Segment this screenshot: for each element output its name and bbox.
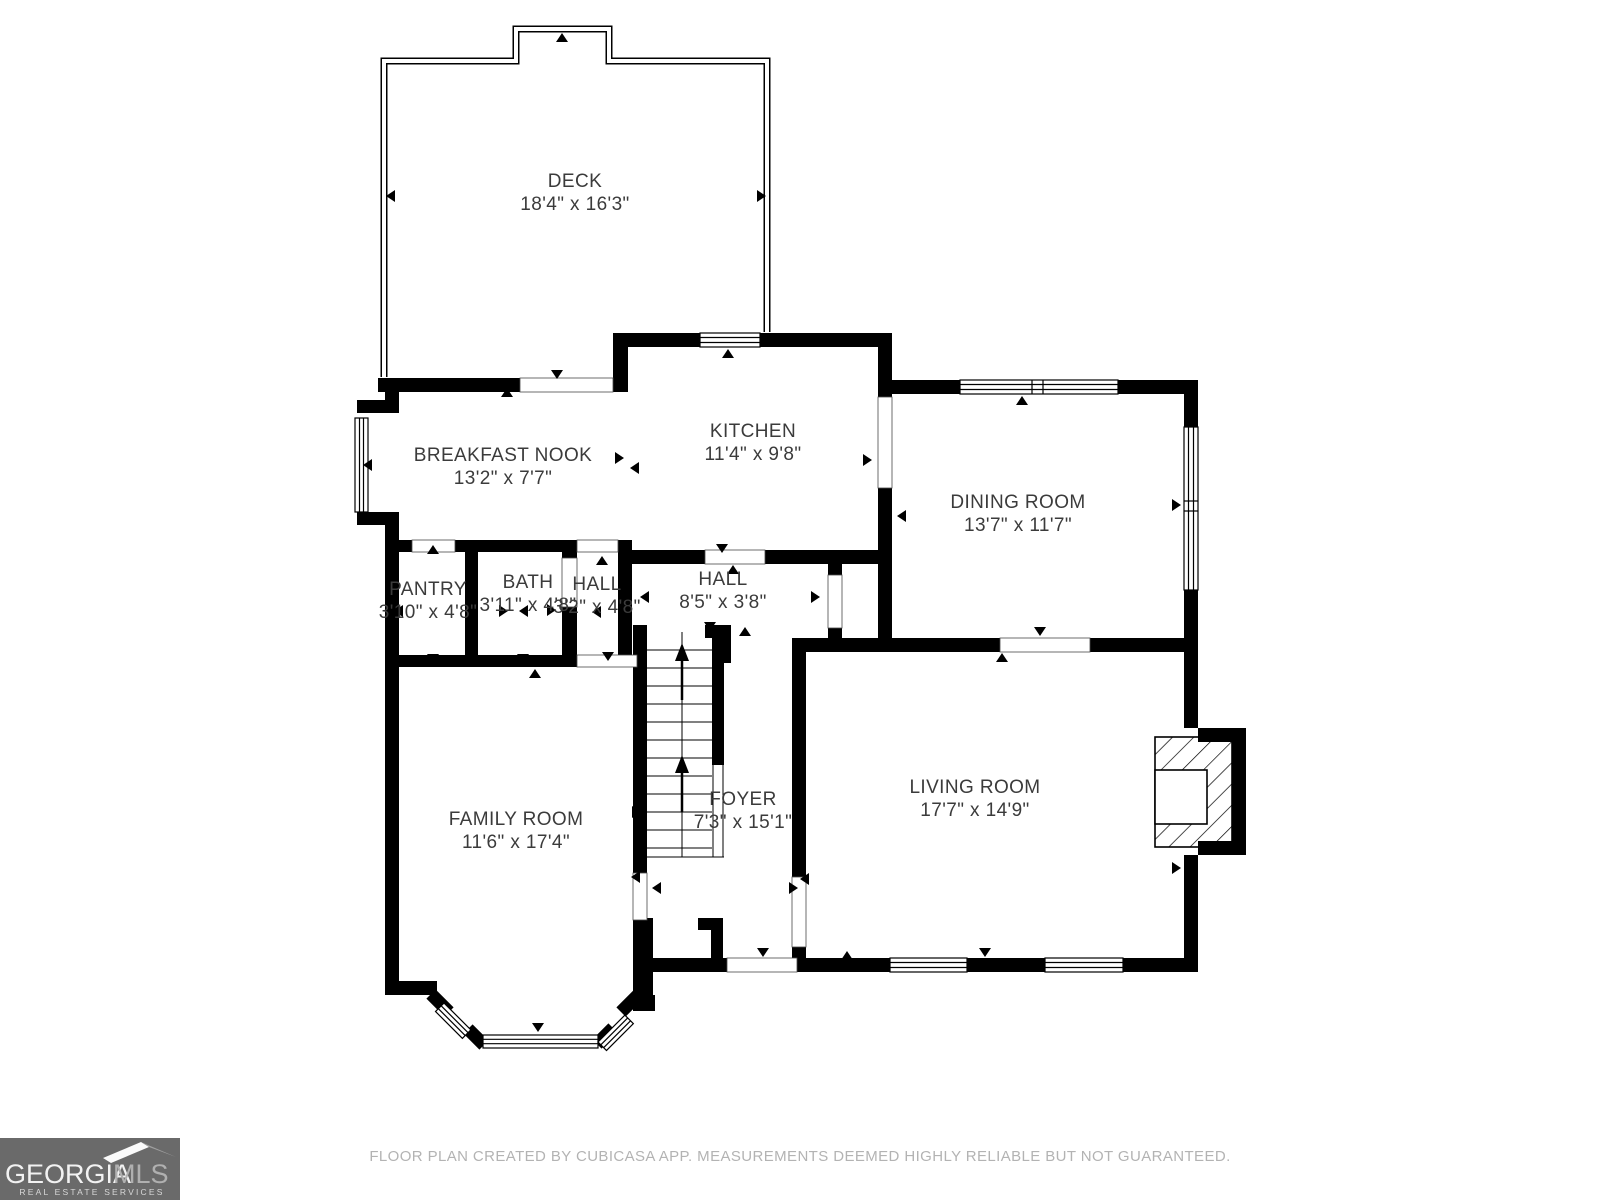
- room-name: DECK: [520, 170, 629, 193]
- dining-right-window: [1184, 427, 1198, 590]
- room-label-pantry: PANTRY 3'10" x 4'8": [379, 578, 477, 624]
- floor-plan-page: DECK 18'4" x 16'3" BREAKFAST NOOK 13'2" …: [0, 0, 1600, 1200]
- living-window-right: [1045, 958, 1123, 972]
- bay-window-bottom: [483, 1035, 598, 1048]
- room-label-hall: HALL 8'5" x 3'8": [679, 568, 766, 614]
- logo-tagline: REAL ESTATE SERVICES: [19, 1187, 164, 1197]
- room-label-kitchen: KITCHEN 11'4" x 9'8": [704, 420, 801, 466]
- fireplace-firebox: [1155, 770, 1207, 824]
- room-dims: 7'3" x 15'1": [694, 811, 792, 834]
- footer-disclaimer: FLOOR PLAN CREATED BY CUBICASA APP. MEAS…: [0, 1148, 1600, 1165]
- room-dims: 11'4" x 9'8": [704, 443, 801, 466]
- dining-top-window: [960, 380, 1118, 394]
- room-dims: 3'10" x 4'8": [379, 601, 477, 624]
- room-name: BREAKFAST NOOK: [414, 444, 592, 467]
- room-label-family-room: FAMILY ROOM 11'6" x 17'4": [449, 808, 584, 854]
- room-name: DINING ROOM: [950, 491, 1085, 514]
- room-dims: 8'5" x 3'8": [679, 591, 766, 614]
- room-name: FAMILY ROOM: [449, 808, 584, 831]
- room-label-deck: DECK 18'4" x 16'3": [520, 170, 629, 216]
- room-name: PANTRY: [379, 578, 477, 601]
- living-window-left: [890, 958, 967, 972]
- room-label-hall-small: HALL 3'2" x 4'8": [553, 573, 640, 619]
- room-label-dining-room: DINING ROOM 13'7" x 11'7": [950, 491, 1085, 537]
- room-name: HALL: [679, 568, 766, 591]
- room-dims: 3'2" x 4'8": [553, 596, 640, 619]
- room-dims: 11'6" x 17'4": [449, 831, 584, 854]
- kitchen-window: [700, 333, 760, 347]
- room-name: LIVING ROOM: [909, 776, 1040, 799]
- room-name: HALL: [553, 573, 640, 596]
- floor-plan-drawing: [0, 0, 1600, 1200]
- fireplace: [1155, 737, 1232, 847]
- room-dims: 13'2" x 7'7": [414, 467, 592, 490]
- room-label-foyer: FOYER 7'3" x 15'1": [694, 788, 792, 834]
- bay-window-left: [436, 1003, 471, 1038]
- room-name: KITCHEN: [704, 420, 801, 443]
- room-dims: 13'7" x 11'7": [950, 514, 1085, 537]
- room-label-breakfast-nook: BREAKFAST NOOK 13'2" x 7'7": [414, 444, 592, 490]
- room-dims: 18'4" x 16'3": [520, 193, 629, 216]
- room-name: FOYER: [694, 788, 792, 811]
- room-dims: 17'7" x 14'9": [909, 799, 1040, 822]
- room-label-living-room: LIVING ROOM 17'7" x 14'9": [909, 776, 1040, 822]
